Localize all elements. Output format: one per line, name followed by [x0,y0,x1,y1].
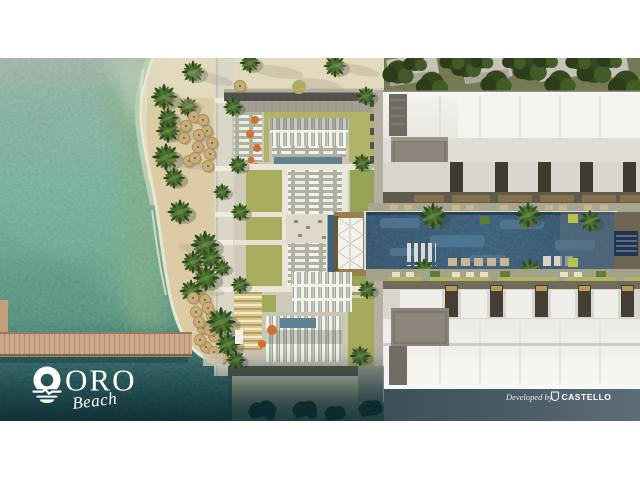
svg-text:Developed by: Developed by [505,392,553,402]
svg-text:CASTELLO: CASTELLO [562,392,612,402]
